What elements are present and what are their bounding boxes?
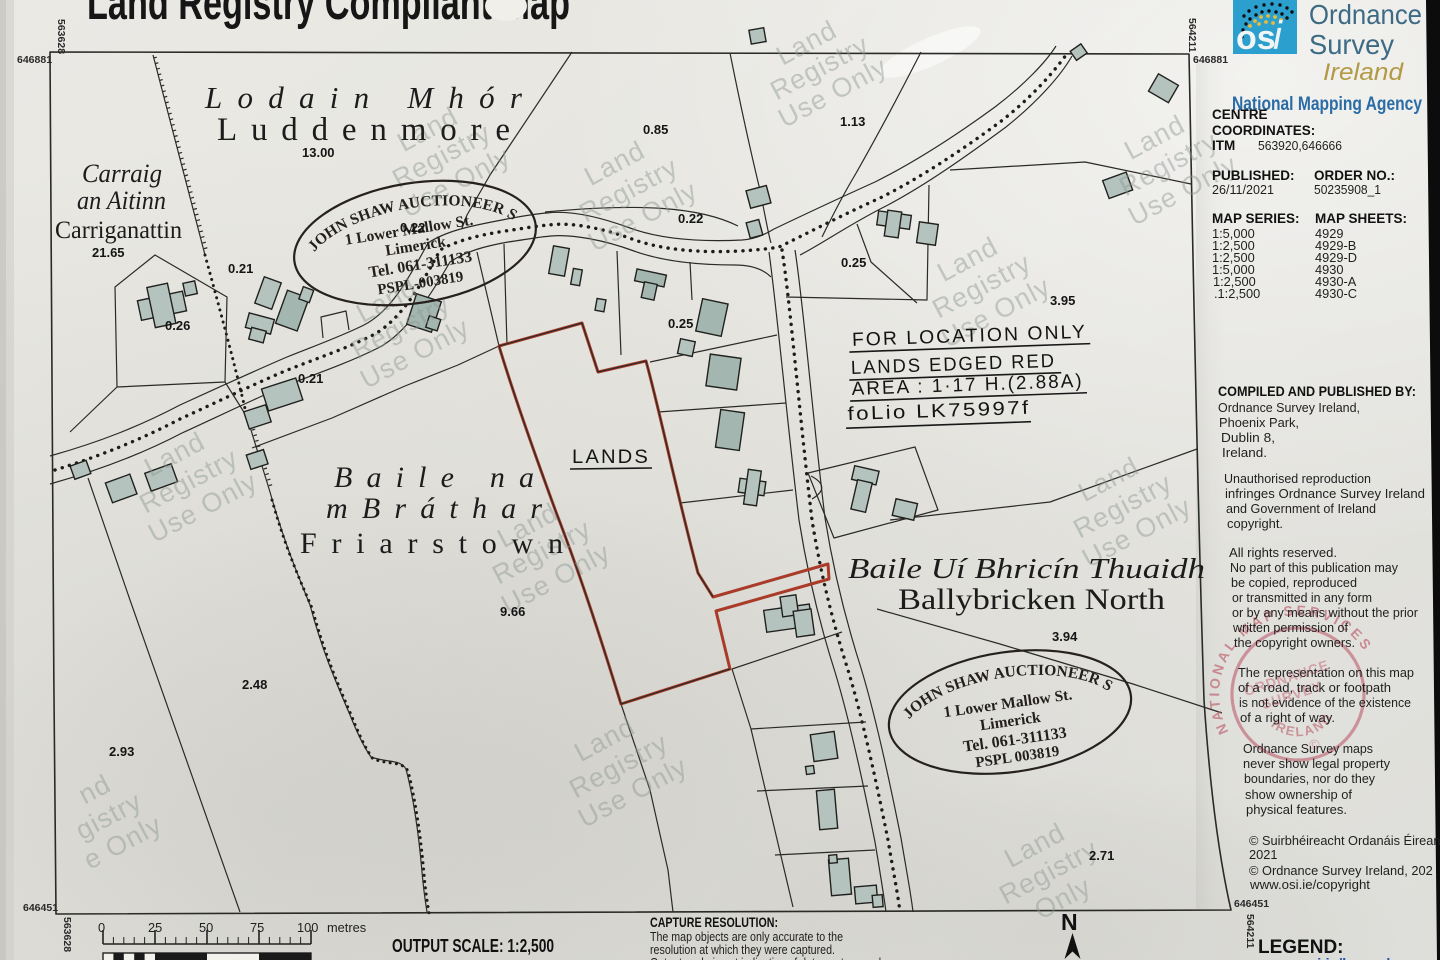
svg-text:.1:2,500: .1:2,500 [1214, 286, 1260, 301]
svg-text:The representation on this map: The representation on this map [1238, 665, 1414, 680]
svg-text:LANDS: LANDS [572, 447, 650, 468]
svg-text:50235908_1: 50235908_1 [1314, 182, 1381, 197]
svg-text:www.osi.ie/copyright: www.osi.ie/copyright [1249, 877, 1370, 892]
svg-text:646881: 646881 [17, 54, 52, 66]
svg-text:Phoenix Park,: Phoenix Park, [1219, 415, 1299, 430]
svg-text:is not evidence of the existen: is not evidence of the existence [1239, 695, 1411, 710]
svg-text:MAP SHEETS:: MAP SHEETS: [1315, 211, 1407, 226]
svg-text:No part of this publication ma: No part of this publication may [1230, 560, 1399, 575]
svg-text:2021: 2021 [1249, 847, 1277, 862]
svg-text:Unauthorised reproduction: Unauthorised reproduction [1224, 471, 1371, 486]
svg-text:os: os [1236, 19, 1276, 57]
svg-text:or transmitted in any form: or transmitted in any form [1232, 590, 1372, 605]
svg-text:Ballybricken North: Ballybricken North [898, 583, 1165, 616]
svg-text:50: 50 [199, 920, 213, 935]
svg-text:0.25: 0.25 [668, 316, 693, 331]
svg-text:Survey: Survey [1309, 29, 1394, 60]
svg-text:of a right of way.: of a right of way. [1240, 710, 1335, 725]
svg-text:boundaries, nor do they: boundaries, nor do they [1244, 771, 1376, 786]
svg-text:never show legal property: never show legal property [1243, 756, 1391, 771]
svg-text:75: 75 [250, 920, 264, 935]
svg-text:0.25: 0.25 [841, 255, 866, 270]
svg-text:0.22: 0.22 [678, 211, 703, 226]
svg-text:www.osi.ie/legend: www.osi.ie/legend [1260, 956, 1390, 960]
svg-text:Friarstown: Friarstown [300, 527, 563, 560]
svg-text:3.95: 3.95 [1050, 293, 1075, 308]
svg-text:Ordnance: Ordnance [1309, 0, 1422, 30]
svg-text:COMPILED AND PUBLISHED BY:: COMPILED AND PUBLISHED BY: [1218, 384, 1416, 399]
svg-text:0.26: 0.26 [165, 318, 190, 333]
svg-text:copyright.: copyright. [1227, 516, 1283, 531]
svg-text:© Ordnance Survey Ireland, 20: © Ordnance Survey Ireland, 202 [1249, 863, 1433, 878]
svg-text:N: N [1061, 909, 1078, 935]
svg-text:Carriganattin: Carriganattin [55, 217, 182, 244]
svg-text:Baile Uí Bhricín Thuaidh: Baile Uí Bhricín Thuaidh [848, 553, 1205, 585]
svg-text:ORDER NO.:: ORDER NO.: [1314, 168, 1395, 183]
svg-text:Ireland: Ireland [1323, 59, 1404, 86]
svg-text:physical features.: physical features. [1246, 802, 1347, 817]
svg-text:and Government of Ireland: and Government of Ireland [1226, 501, 1376, 516]
svg-text:COORDINATES:: COORDINATES: [1212, 123, 1315, 138]
svg-text:646451: 646451 [1234, 898, 1269, 910]
svg-text:Ordnance Survey maps: Ordnance Survey maps [1243, 741, 1373, 756]
svg-text:metres: metres [327, 920, 366, 935]
svg-text:Ordnance Survey Ireland,: Ordnance Survey Ireland, [1218, 400, 1360, 415]
svg-text:2.48: 2.48 [242, 677, 267, 692]
svg-text:LEGEND:: LEGEND: [1258, 937, 1344, 958]
svg-text:563628: 563628 [61, 917, 73, 952]
svg-text:i: i [1273, 14, 1283, 58]
svg-text:OUTPUT SCALE: 1:2,500: OUTPUT SCALE: 1:2,500 [392, 935, 554, 956]
svg-text:infringes Ordnance Survey Irel: infringes Ordnance Survey Ireland [1225, 486, 1425, 501]
svg-text:0.21: 0.21 [298, 371, 323, 386]
svg-text:563920,646666: 563920,646666 [1258, 138, 1342, 153]
svg-text:show ownership of: show ownership of [1245, 787, 1352, 802]
svg-text:Ireland.: Ireland. [1222, 445, 1267, 460]
svg-text:564211: 564211 [1244, 914, 1256, 949]
svg-text:26/11/2021: 26/11/2021 [1212, 182, 1274, 197]
svg-text:PUBLISHED:: PUBLISHED: [1212, 168, 1295, 183]
svg-text:CENTRE: CENTRE [1212, 107, 1268, 122]
svg-text:Output scale is not indicative: Output scale is not indicative of data c… [650, 955, 890, 960]
svg-text:written permission of: written permission of [1232, 620, 1348, 635]
svg-text:0: 0 [98, 920, 105, 935]
svg-text:or by any means without the pr: or by any means without the prior [1232, 605, 1419, 620]
svg-text:an Aitinn: an Aitinn [77, 186, 166, 215]
svg-text:of a road, track or footpath: of a road, track or footpath [1238, 680, 1391, 695]
svg-text:ITM: ITM [1212, 138, 1235, 153]
svg-text:564211: 564211 [1186, 18, 1198, 53]
svg-text:the copyright owners.: the copyright owners. [1234, 635, 1355, 650]
svg-text:Carraig: Carraig [82, 159, 162, 188]
svg-text:2.71: 2.71 [1089, 848, 1114, 863]
svg-text:646881: 646881 [1193, 54, 1228, 66]
svg-text:13.00: 13.00 [302, 145, 335, 160]
svg-text:Dublin 8,: Dublin 8, [1221, 430, 1275, 445]
svg-text:9.66: 9.66 [500, 604, 525, 619]
svg-text:© Suirbhéireacht Ordanáis Éire: © Suirbhéireacht Ordanáis Éirean [1249, 833, 1440, 848]
svg-text:0.85: 0.85 [643, 122, 668, 137]
svg-text:CAPTURE RESOLUTION:: CAPTURE RESOLUTION: [650, 914, 778, 930]
svg-text:4930-C: 4930-C [1315, 286, 1357, 301]
svg-text:646451: 646451 [23, 902, 58, 914]
svg-text:1.13: 1.13 [840, 114, 865, 129]
svg-text:be copied, reproduced: be copied, reproduced [1231, 575, 1357, 590]
svg-text:563628: 563628 [55, 19, 67, 54]
svg-text:All rights reserved.: All rights reserved. [1229, 545, 1337, 560]
svg-text:21.65: 21.65 [92, 245, 125, 260]
svg-text:0.22: 0.22 [400, 220, 425, 235]
svg-text:100: 100 [297, 920, 318, 935]
svg-text:0.21: 0.21 [228, 261, 253, 276]
svg-text:MAP SERIES:: MAP SERIES: [1212, 211, 1300, 226]
svg-text:3.94: 3.94 [1052, 629, 1078, 644]
svg-text:2.93: 2.93 [109, 744, 134, 759]
